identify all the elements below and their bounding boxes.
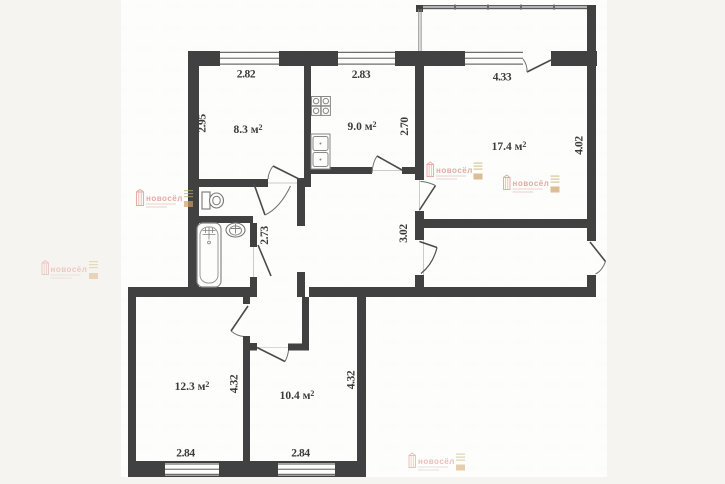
- svg-text:2.82: 2.82: [237, 69, 256, 81]
- svg-text:новосёл: новосёл: [146, 194, 183, 203]
- svg-text:2.70: 2.70: [399, 117, 411, 136]
- svg-text:17.4 м2: 17.4 м2: [492, 140, 527, 153]
- svg-text:2.83: 2.83: [352, 69, 371, 81]
- svg-text:новосёл: новосёл: [513, 179, 550, 188]
- svg-text:8.3 м2: 8.3 м2: [233, 123, 262, 136]
- svg-text:9.0 м2: 9.0 м2: [347, 120, 376, 133]
- svg-text:3.02: 3.02: [398, 224, 410, 243]
- svg-text:2.95: 2.95: [197, 114, 209, 133]
- svg-text:4.32: 4.32: [346, 370, 358, 389]
- svg-text:новосёл: новосёл: [436, 166, 473, 175]
- svg-text:10.4 м2: 10.4 м2: [280, 389, 315, 402]
- svg-text:новосёл: новосёл: [418, 457, 455, 466]
- svg-text:4.33: 4.33: [493, 72, 512, 84]
- svg-text:новосёл: новосёл: [51, 265, 88, 274]
- svg-text:4.02: 4.02: [574, 136, 586, 155]
- svg-text:2.84: 2.84: [176, 448, 195, 460]
- svg-text:4.32: 4.32: [229, 374, 241, 393]
- svg-text:2.84: 2.84: [291, 448, 310, 460]
- svg-text:12.3 м2: 12.3 м2: [175, 380, 210, 393]
- svg-text:2.73: 2.73: [259, 226, 271, 245]
